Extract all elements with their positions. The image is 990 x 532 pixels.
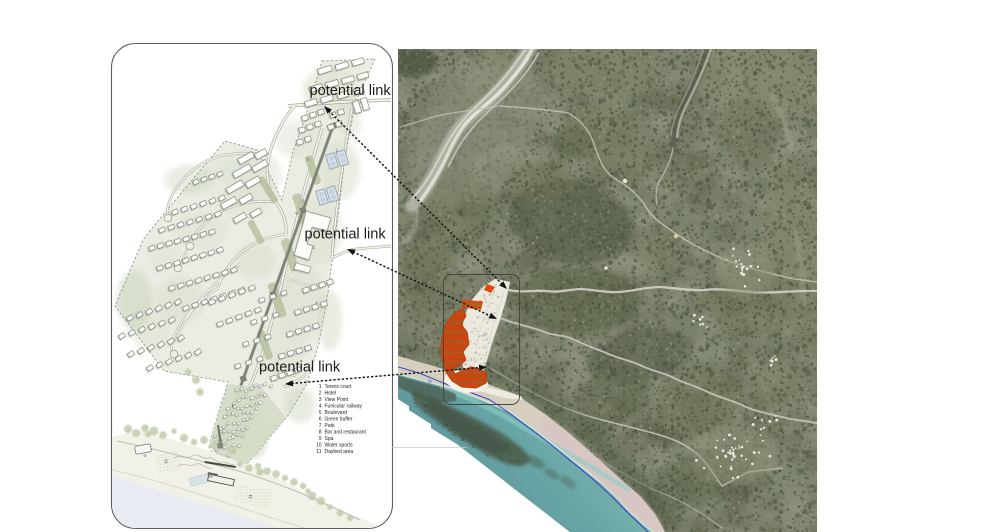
- svg-text:5: 5: [319, 410, 322, 416]
- svg-text:8: 8: [319, 429, 322, 435]
- svg-text:2: 2: [319, 390, 322, 396]
- svg-text:View Point: View Point: [325, 397, 349, 403]
- svg-text:potential link: potential link: [305, 227, 387, 243]
- svg-text:6: 6: [319, 416, 322, 422]
- svg-text:7: 7: [319, 423, 322, 429]
- svg-text:potential link: potential link: [259, 360, 341, 376]
- svg-text:Hotel: Hotel: [325, 390, 337, 396]
- svg-text:potential link: potential link: [310, 83, 392, 99]
- svg-text:Green buffer: Green buffer: [325, 416, 353, 422]
- svg-text:3: 3: [319, 397, 322, 403]
- svg-text:Daybed area: Daybed area: [325, 449, 354, 455]
- svg-text:Boulevard: Boulevard: [325, 410, 348, 416]
- svg-text:Spa: Spa: [325, 436, 334, 442]
- svg-text:9: 9: [319, 436, 322, 442]
- svg-text:10: 10: [316, 443, 322, 449]
- svg-text:1: 1: [319, 384, 322, 390]
- svg-text:Tennis court: Tennis court: [325, 384, 353, 390]
- svg-text:Water sports: Water sports: [325, 443, 354, 449]
- svg-text:Park: Park: [325, 423, 336, 429]
- svg-text:11: 11: [316, 449, 321, 455]
- svg-text:4: 4: [319, 403, 322, 409]
- svg-text:Bar and restaurant: Bar and restaurant: [325, 429, 367, 435]
- svg-text:Funicular railway: Funicular railway: [325, 403, 363, 409]
